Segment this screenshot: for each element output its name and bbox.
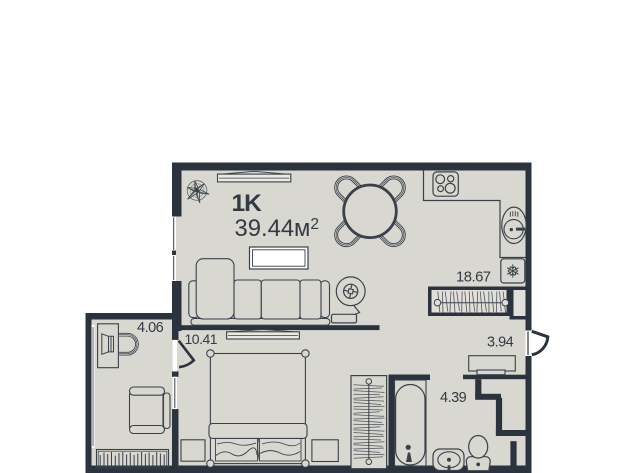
svg-text:18.67: 18.67 [456, 270, 491, 286]
svg-text:1K: 1K [232, 190, 263, 217]
svg-text:4.39: 4.39 [440, 390, 467, 406]
svg-text:10.41: 10.41 [185, 331, 218, 347]
svg-text:39.44м2: 39.44м2 [235, 215, 320, 242]
svg-text:4.06: 4.06 [137, 320, 164, 336]
svg-text:3.94: 3.94 [487, 335, 514, 351]
